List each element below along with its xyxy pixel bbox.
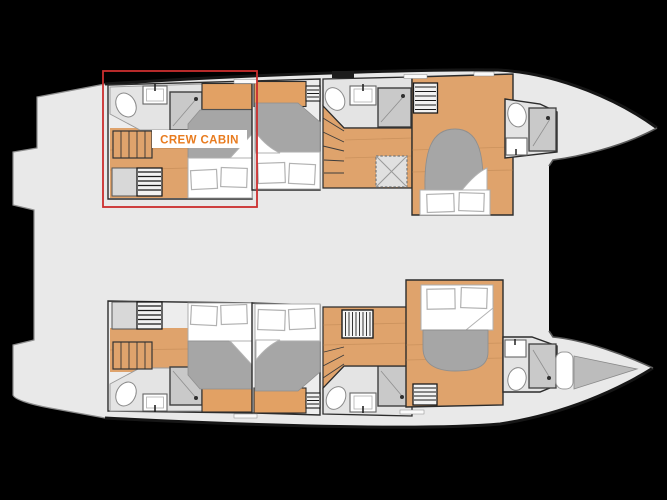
cabin-bottom-2-pillow — [288, 308, 315, 329]
cabin-bottom-bow-bed-duvet — [423, 330, 488, 371]
bathroom-top-bow-shower-head-icon — [546, 116, 550, 120]
crew-shower-head-icon — [194, 97, 198, 101]
cabin-bottom-aft-shower-head-icon — [194, 396, 198, 400]
catamaran-floor-plan: CREW CABIN — [0, 0, 667, 500]
cabin-top-2-pillow — [288, 163, 315, 184]
bathroom-bottom-bow — [503, 337, 557, 392]
cabin-top-2-pillow — [258, 163, 286, 184]
hull-window-top — [474, 72, 494, 76]
cabin-bottom-2 — [252, 303, 320, 415]
bathroom-top-bow-shower — [529, 108, 556, 151]
cabin-bottom-2-pillow — [258, 310, 286, 331]
bathroom-bottom-mid-shower-head-icon — [400, 395, 404, 399]
crew-cabinet — [112, 168, 137, 196]
cabin-bottom-aft-pillow — [190, 305, 217, 325]
bathroom-top-mid-shower — [378, 88, 411, 127]
cabin-top-bow-pillow — [459, 193, 485, 212]
cabin-bottom-bow-pillow — [461, 288, 488, 309]
cabin-bottom-aft-pillow — [221, 305, 248, 325]
cabin-bottom-bow-pillow — [427, 289, 455, 309]
floor-plan-canvas: CREW CABIN — [0, 0, 667, 500]
crew-wardrobe — [202, 84, 252, 110]
hull-window-bottom — [234, 414, 257, 418]
hull-window-top — [234, 80, 257, 84]
cabin-top-bow — [412, 74, 513, 215]
cabin-bottom-aft-stairs — [113, 342, 152, 369]
crew-pillow — [221, 168, 248, 188]
louver-vertical-cabinet — [342, 310, 373, 338]
forepeak-cushion — [556, 352, 573, 389]
bathroom-top-mid-shower-head-icon — [401, 94, 405, 98]
cabin-top-bow-pillow — [427, 194, 455, 213]
crew-cabin-label: CREW CABIN — [160, 135, 239, 147]
bathroom-bottom-bow-shower-head-icon — [547, 376, 551, 380]
crew-stairs — [113, 131, 152, 158]
cabin-bottom-aft-wardrobe — [202, 388, 252, 412]
cabin-bottom-2-wardrobe — [254, 388, 306, 413]
cabin-bottom-aft-cabinet — [112, 302, 137, 329]
crew-pillow — [191, 169, 218, 189]
cabin-top-2 — [252, 79, 320, 190]
deck-hatch-top — [332, 71, 354, 78]
hull-window-bottom — [400, 410, 424, 414]
bathroom-top-bow — [505, 99, 557, 158]
hull-window-top — [404, 75, 427, 79]
cabin-bottom-bow — [406, 280, 503, 407]
cabin-bottom-aft — [108, 301, 252, 413]
cabin-bottom-bow-louver-cabinet — [413, 384, 437, 405]
